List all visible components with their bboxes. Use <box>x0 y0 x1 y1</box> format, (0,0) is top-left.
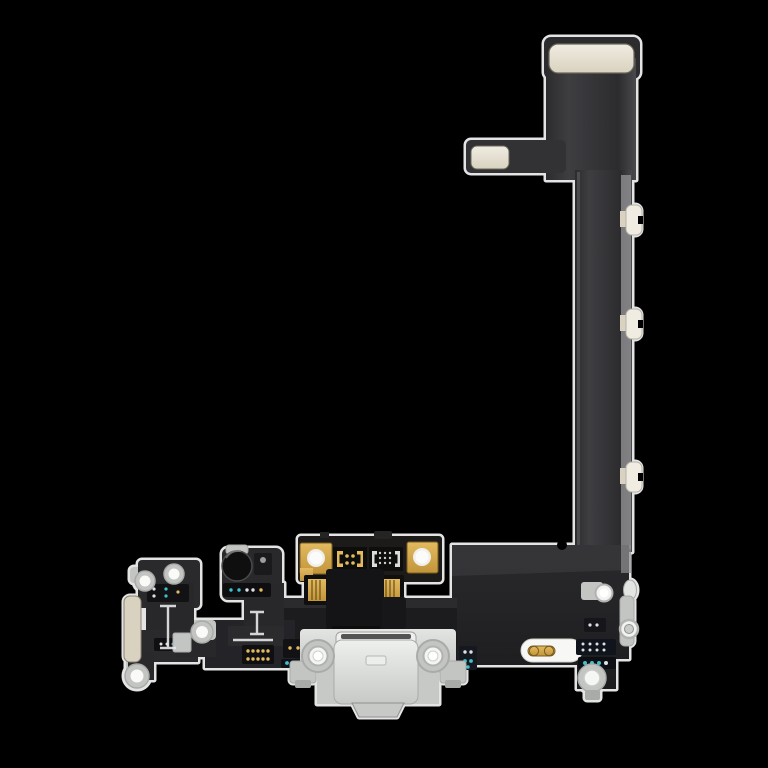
battery-contact-pill <box>521 639 582 662</box>
board-top-notch <box>557 540 567 550</box>
ic-dot <box>259 588 262 591</box>
ic-dot <box>351 554 355 558</box>
ribbon-left-highlight <box>577 172 580 550</box>
ic-dot <box>345 554 349 558</box>
ic-dot <box>345 561 349 565</box>
pad-hole-center <box>416 551 429 564</box>
ic-dot <box>296 646 299 649</box>
ic-dot <box>588 623 591 626</box>
port-tail <box>352 703 404 717</box>
board-ic <box>242 645 274 664</box>
ic-dot <box>469 659 473 663</box>
ic-dot <box>160 643 163 646</box>
ic-dot <box>176 590 179 593</box>
housing-lobe <box>382 597 406 629</box>
beige-bracket-strip <box>124 596 141 662</box>
flex-cable-illustration <box>0 0 768 768</box>
ic-dot <box>595 623 598 626</box>
bracket-foot <box>295 680 311 688</box>
sensor-dot <box>260 557 266 563</box>
ic-dot <box>466 665 469 668</box>
port-slot <box>366 656 386 665</box>
board-connector-pad <box>549 44 634 73</box>
small-chip <box>584 618 606 632</box>
connector-chip <box>576 639 616 655</box>
ic-dot <box>164 587 167 590</box>
ic-dot <box>245 588 248 591</box>
ic-dot <box>285 661 289 665</box>
port-opening-shadow <box>341 634 411 639</box>
screw-boss-right <box>417 640 449 672</box>
ic-dot <box>152 594 155 597</box>
ic-pins <box>379 552 391 564</box>
pcb-bump <box>320 532 329 538</box>
board-edge-strip <box>621 545 631 573</box>
ic-dot <box>469 650 472 653</box>
ic-dot <box>351 561 355 565</box>
ic-dot <box>229 588 232 591</box>
screw-boss-ring <box>584 670 600 686</box>
ic-dot <box>164 594 167 597</box>
ic-dot <box>463 650 466 653</box>
microphone-arm <box>222 545 284 646</box>
ic-dot <box>604 661 608 665</box>
ic-dot <box>251 588 254 591</box>
product-photo-charging-port-flex <box>0 0 768 768</box>
eyelet-hole <box>625 625 634 634</box>
microphone <box>222 551 252 581</box>
sensor-chip <box>254 553 272 575</box>
arm-pad <box>471 146 509 169</box>
bracket-foot <box>445 680 461 688</box>
screw-boss-left <box>302 640 334 672</box>
screw-hole-center <box>600 589 609 598</box>
flex-ribbon-arm <box>466 140 566 173</box>
ic-dot <box>288 646 291 649</box>
port-housing-block <box>326 569 384 633</box>
ic-dot <box>237 588 240 591</box>
boss-foot <box>585 690 600 700</box>
pad-hole-center <box>310 552 323 565</box>
lightning-port-body <box>334 640 418 704</box>
pcb-bump <box>374 531 392 539</box>
